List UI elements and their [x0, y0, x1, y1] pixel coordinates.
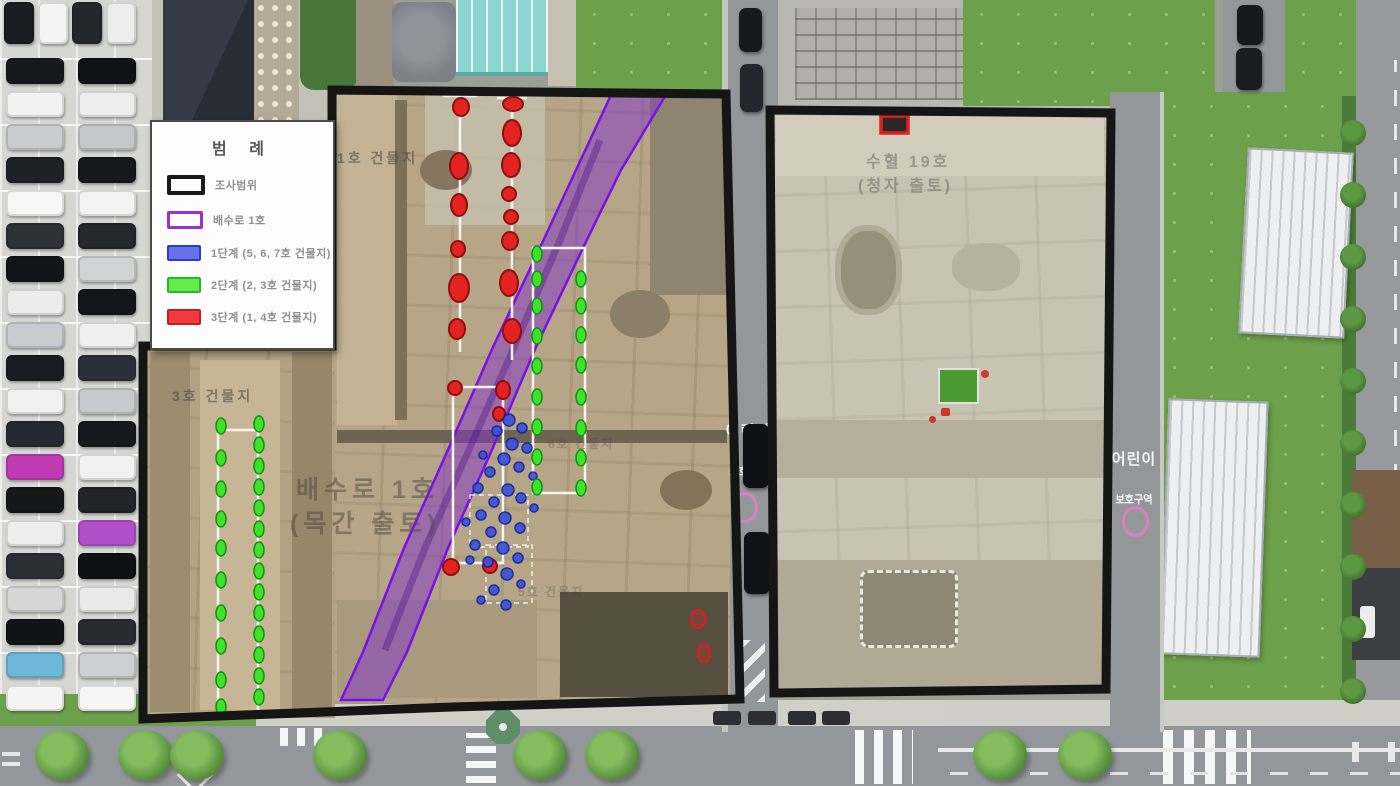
- stage1-marking: [502, 484, 514, 496]
- stage2-marking: [254, 584, 264, 600]
- stage2-marking: [576, 420, 586, 436]
- stage1-marking: [516, 493, 526, 503]
- label-building-1: 1호 건물지: [337, 148, 418, 168]
- stage2-marking: [254, 626, 264, 642]
- stage1-marking: [489, 497, 499, 507]
- stage1-marking: [499, 512, 511, 524]
- stage1-marking: [489, 585, 499, 595]
- stage2-marking: [254, 416, 264, 432]
- stage2-marking: [532, 419, 542, 435]
- stage3-marking: [443, 559, 459, 575]
- stage2-marking: [254, 500, 264, 516]
- stage1-marking: [470, 540, 480, 550]
- stage3-marking: [453, 98, 469, 116]
- stage3-marking: [502, 187, 516, 201]
- stage2-marking: [254, 437, 264, 453]
- label-building-3: 3호 건물지: [172, 386, 253, 406]
- stage3-marking: [451, 194, 467, 216]
- stage1-marking: [466, 556, 474, 564]
- legend-label: 조사범위: [215, 177, 257, 193]
- stage1-marking: [492, 426, 502, 436]
- legend-swatch-drain-no1: [167, 211, 203, 229]
- stage1-marking: [476, 510, 486, 520]
- legend-swatch-stage-3: [167, 309, 201, 325]
- legend: 범 례 조사범위배수로 1호1단계 (5, 6, 7호 건물지)2단계 (2, …: [150, 120, 335, 350]
- stage2-marking: [216, 511, 226, 527]
- stage3-marking: [449, 274, 469, 302]
- stage2-marking: [254, 479, 264, 495]
- stage2-marking: [216, 572, 226, 588]
- stage3-marking: [502, 153, 520, 177]
- stage3-marking: [448, 381, 462, 395]
- stage3-rectangle-right-site: [881, 116, 908, 133]
- stage2-marking: [254, 668, 264, 684]
- stage1-marking: [477, 596, 485, 604]
- stage1-marking: [479, 451, 487, 459]
- legend-item-stage-1: 1단계 (5, 6, 7호 건물지): [167, 245, 333, 261]
- stage3-marking: [502, 232, 518, 250]
- stage3-marking: [504, 210, 518, 224]
- stage2-marking: [532, 449, 542, 465]
- stage2-marking: [216, 672, 226, 688]
- stage2-marking: [216, 540, 226, 556]
- legend-items: 조사범위배수로 1호1단계 (5, 6, 7호 건물지)2단계 (2, 3호 건…: [167, 175, 333, 325]
- stage1-marking: [501, 600, 511, 610]
- stage3-marking: [496, 381, 510, 399]
- stage2-marking: [532, 298, 542, 314]
- legend-label: 2단계 (2, 3호 건물지): [211, 277, 317, 293]
- stage3-marking: [449, 319, 465, 339]
- stage2-marking: [576, 298, 586, 314]
- stage1-marking: [501, 568, 513, 580]
- stage1-marking: [462, 518, 470, 526]
- label-building-6: 6호 건물지: [548, 435, 614, 452]
- stage2-marking: [254, 689, 264, 705]
- label-drain-note: (목간 출토): [290, 504, 441, 540]
- stage3-outline-marking: [691, 610, 705, 628]
- legend-label: 1단계 (5, 6, 7호 건물지): [211, 245, 331, 261]
- legend-item-drain-no1: 배수로 1호: [167, 211, 333, 229]
- stage3-marking: [503, 120, 521, 146]
- stage1-marking: [513, 553, 523, 563]
- label-building-5: 5호 건물지: [518, 583, 584, 600]
- stage2-marking: [254, 605, 264, 621]
- stage1-marking: [514, 462, 524, 472]
- stage1-marking: [497, 542, 509, 554]
- stage3-marking: [451, 241, 465, 257]
- legend-item-stage-3: 3단계 (1, 4호 건물지): [167, 309, 333, 325]
- stage2-marking: [216, 481, 226, 497]
- stage2-marking: [532, 389, 542, 405]
- legend-swatch-stage-1: [167, 245, 201, 261]
- legend-swatch-survey-area: [167, 175, 205, 195]
- label-drain-name: 배수로 1호: [296, 470, 439, 506]
- stage3-marking: [503, 97, 523, 111]
- stage3-marking: [503, 319, 521, 343]
- stage1-marking: [530, 504, 538, 512]
- stage1-marking: [522, 443, 532, 453]
- stage2-marking: [254, 563, 264, 579]
- stage2-marking: [216, 450, 226, 466]
- stage2-marking: [254, 521, 264, 537]
- legend-title: 범 례: [152, 135, 333, 159]
- stage3-outline-marking: [698, 644, 710, 662]
- stage1-marking: [486, 527, 496, 537]
- legend-item-stage-2: 2단계 (2, 3호 건물지): [167, 277, 333, 293]
- stage2-marking: [576, 480, 586, 496]
- stage2-marking: [254, 647, 264, 663]
- stage1-marking: [503, 414, 515, 426]
- stage1-marking: [473, 483, 483, 493]
- stage2-marking: [532, 479, 542, 495]
- stage1-marking: [515, 523, 525, 533]
- stage2-marking: [532, 246, 542, 262]
- stage1-marking: [517, 423, 527, 433]
- stage2-marking: [532, 271, 542, 287]
- stage2-marking: [576, 389, 586, 405]
- legend-label: 3단계 (1, 4호 건물지): [211, 309, 317, 325]
- stage2-marking: [532, 328, 542, 344]
- stage1-marking: [498, 453, 510, 465]
- stage2-marking: [216, 418, 226, 434]
- label-pit-name: 수혈 19호: [866, 148, 950, 172]
- stage2-marking: [576, 327, 586, 343]
- label-pit-note: (청자 출토): [858, 172, 953, 196]
- stage3-marking: [450, 153, 468, 179]
- legend-label: 배수로 1호: [213, 212, 266, 228]
- legend-swatch-stage-2: [167, 277, 201, 293]
- survey-outline-right: [770, 110, 1111, 693]
- stage2-marking: [532, 358, 542, 374]
- stage3-marking: [500, 270, 518, 296]
- stage1-marking: [483, 557, 493, 567]
- stage2-marking: [254, 542, 264, 558]
- stage2-marking: [576, 357, 586, 373]
- stage1-marking: [485, 467, 495, 477]
- stage2-marking: [576, 450, 586, 466]
- legend-item-survey-area: 조사범위: [167, 175, 333, 195]
- stage2-marking: [576, 271, 586, 287]
- stage1-marking: [506, 438, 518, 450]
- stage2-marking: [216, 605, 226, 621]
- aerial-photo: 어린이 보호구역 어린이 보호구역 1호 건물지 3호 건물지 5호 건물지 6…: [0, 0, 1400, 786]
- stage2-marking: [216, 638, 226, 654]
- stage2-marking: [254, 458, 264, 474]
